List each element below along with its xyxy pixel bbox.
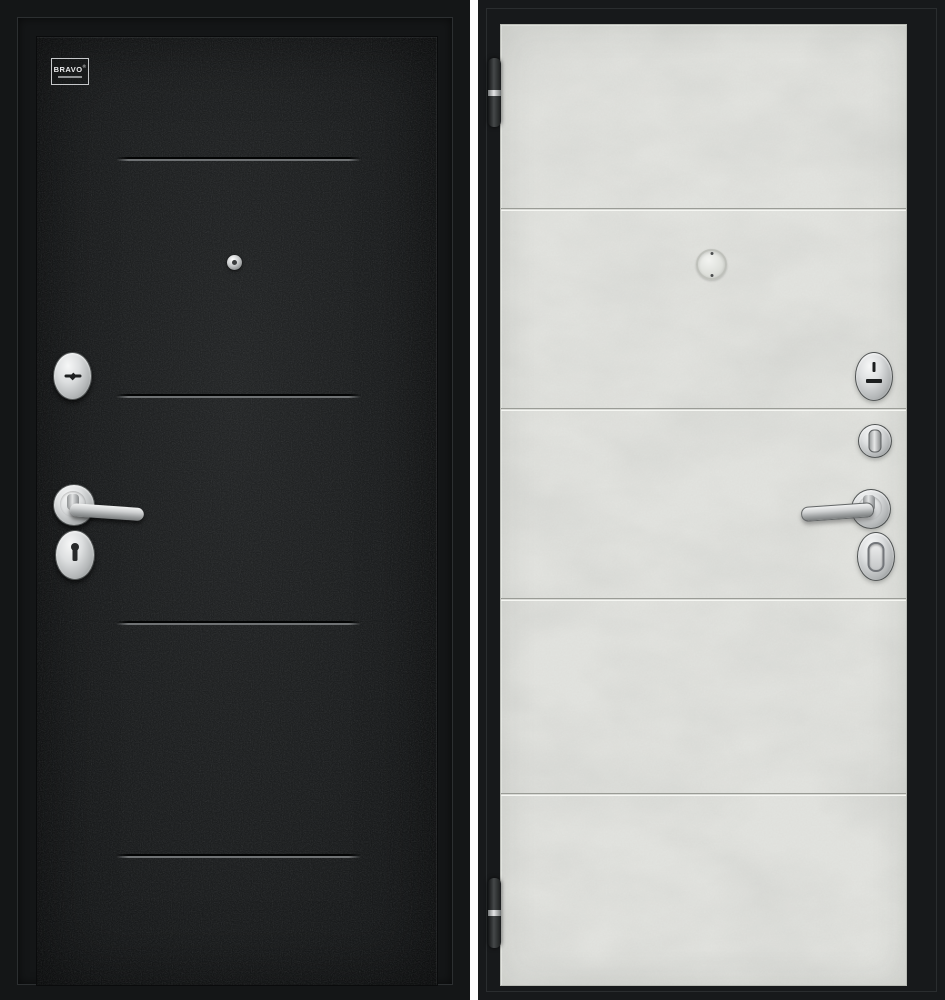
brand-logo-tagline [58,76,82,78]
thumbturn-interior [858,424,892,458]
keyhole-escutcheon-interior [857,532,895,581]
decorative-groove [501,208,906,211]
decorative-groove [116,621,361,625]
peephole-screw [710,252,713,255]
decorative-groove [116,854,361,858]
brand-logo-text: BRAVO® [54,65,87,74]
hinge-top [488,58,501,127]
product-photo: BRAVO® [0,0,945,1000]
keyhole-stem [73,549,78,561]
keyhole-slot [64,375,81,378]
peephole-interior [696,249,727,280]
exterior-door-panel: BRAVO® [0,0,470,1000]
decorative-groove [501,598,906,601]
keyhole-escutcheon-exterior [55,530,95,580]
cylinder-keyhole-slot [868,542,885,572]
door-leaf-exterior: BRAVO® [36,36,438,986]
hinge-bottom [488,878,501,948]
decorative-groove [116,394,361,398]
peephole-screw [710,274,713,277]
decorative-groove [501,793,906,796]
hinge-band [488,90,501,96]
cylinder-escutcheon-interior [855,352,893,401]
decorative-groove [501,408,906,411]
cylinder-escutcheon-exterior [53,352,92,400]
decorative-groove [116,157,361,161]
peephole-lens [232,260,237,265]
door-leaf-interior [500,24,907,986]
keyhole-mark-vertical [873,362,876,372]
panel-divider [470,0,478,1000]
hinge-band [488,910,501,916]
registered-mark: ® [83,64,87,69]
keyhole-slot-tooth [69,372,77,380]
brand-logo-plate: BRAVO® [51,58,89,85]
thumbturn-knob [869,430,882,453]
peephole-exterior [227,255,242,270]
interior-door-panel [478,0,945,1000]
keyhole-mark-horizontal [866,379,882,383]
